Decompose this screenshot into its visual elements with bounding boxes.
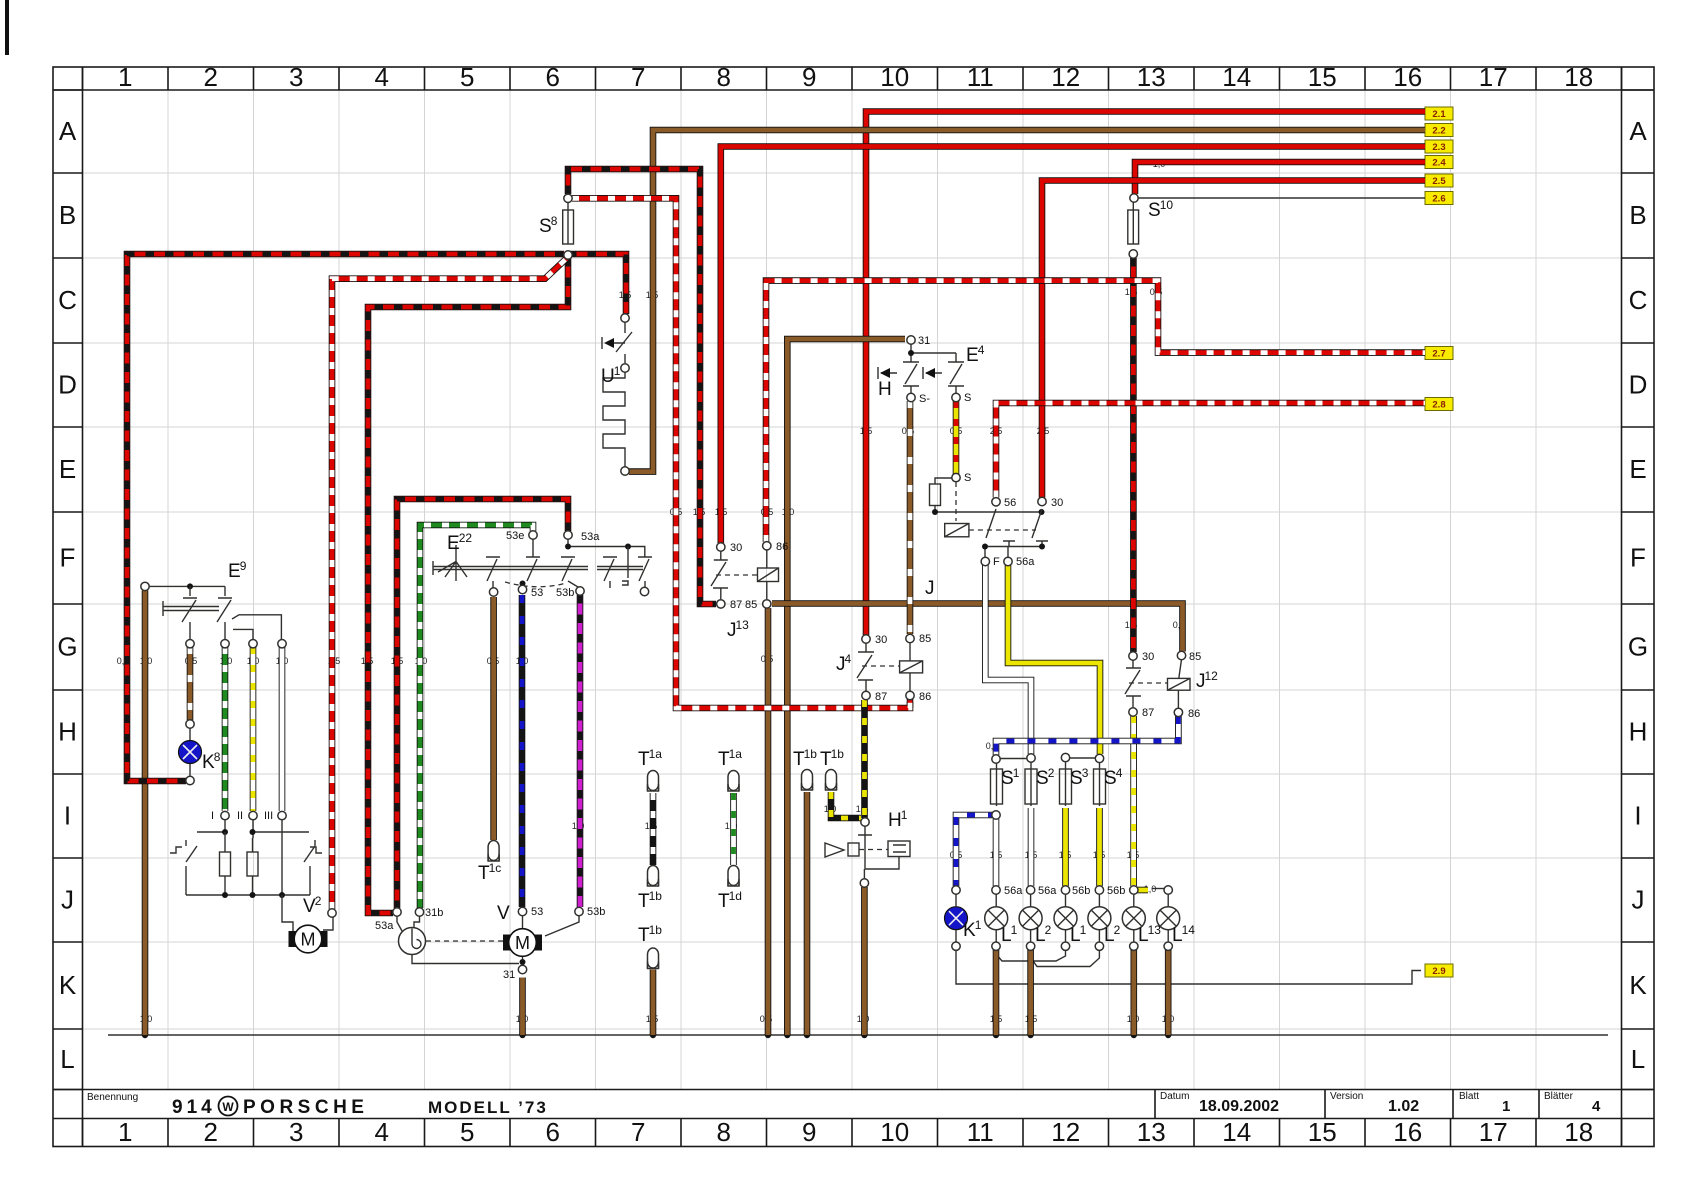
svg-text:4: 4 xyxy=(1592,1098,1601,1115)
svg-text:II: II xyxy=(237,810,243,822)
svg-text:2.6: 2.6 xyxy=(1432,194,1445,205)
svg-text:J: J xyxy=(925,578,935,599)
svg-text:Benennung: Benennung xyxy=(87,1092,138,1103)
svg-text:8: 8 xyxy=(717,62,731,92)
svg-text:W: W xyxy=(222,1100,234,1114)
svg-text:1: 1 xyxy=(118,1117,132,1147)
svg-text:7: 7 xyxy=(631,62,645,92)
svg-text:11: 11 xyxy=(967,1117,994,1147)
svg-text:30: 30 xyxy=(730,542,742,554)
svg-text:85: 85 xyxy=(919,633,931,645)
svg-text:D: D xyxy=(58,370,77,400)
svg-text:53b: 53b xyxy=(587,906,605,918)
svg-text:11: 11 xyxy=(967,62,994,92)
svg-text:12: 12 xyxy=(1051,1117,1080,1147)
svg-text:56b: 56b xyxy=(1072,885,1090,897)
svg-text:87: 87 xyxy=(1142,707,1154,719)
svg-text:S: S xyxy=(964,392,971,404)
svg-text:14: 14 xyxy=(1222,62,1251,92)
svg-text:2.1: 2.1 xyxy=(1432,109,1446,120)
svg-text:8: 8 xyxy=(717,1117,731,1147)
svg-text:2.5: 2.5 xyxy=(1432,176,1446,187)
svg-text:86: 86 xyxy=(776,541,788,553)
svg-text:914: 914 xyxy=(172,1097,216,1118)
svg-text:L: L xyxy=(1631,1044,1645,1074)
svg-text:2.4: 2.4 xyxy=(1432,158,1446,169)
svg-text:53a: 53a xyxy=(375,920,394,932)
svg-text:4: 4 xyxy=(375,1117,389,1147)
svg-text:13: 13 xyxy=(1137,62,1166,92)
svg-text:16: 16 xyxy=(1393,1117,1422,1147)
svg-text:F: F xyxy=(1630,543,1646,573)
svg-text:31b: 31b xyxy=(425,907,443,919)
svg-text:17: 17 xyxy=(1479,1117,1508,1147)
svg-text:I: I xyxy=(64,801,71,831)
svg-text:31: 31 xyxy=(503,969,515,981)
svg-text:S: S xyxy=(964,472,971,484)
svg-text:12: 12 xyxy=(1051,62,1080,92)
svg-text:E: E xyxy=(59,454,76,484)
svg-text:7: 7 xyxy=(631,1117,645,1147)
svg-text:A: A xyxy=(1629,116,1647,146)
svg-text:H: H xyxy=(878,379,892,400)
svg-text:J: J xyxy=(61,885,74,915)
svg-text:6: 6 xyxy=(546,62,560,92)
svg-text:17: 17 xyxy=(1479,62,1508,92)
svg-text:14: 14 xyxy=(1222,1117,1251,1147)
svg-text:10: 10 xyxy=(880,62,909,92)
svg-text:87: 87 xyxy=(730,599,742,611)
svg-text:13: 13 xyxy=(1137,1117,1166,1147)
svg-text:30: 30 xyxy=(1051,497,1063,509)
svg-text:2.9: 2.9 xyxy=(1432,966,1445,977)
svg-text:E: E xyxy=(1629,454,1646,484)
svg-text:56a: 56a xyxy=(1016,556,1035,568)
svg-text:30: 30 xyxy=(1142,651,1154,663)
svg-text:L: L xyxy=(60,1044,74,1074)
svg-text:2.8: 2.8 xyxy=(1432,400,1445,411)
svg-text:30: 30 xyxy=(875,634,887,646)
svg-text:9: 9 xyxy=(802,62,816,92)
svg-text:85: 85 xyxy=(1189,651,1201,663)
svg-text:Blätter: Blätter xyxy=(1544,1091,1574,1102)
svg-text:1: 1 xyxy=(118,62,132,92)
svg-text:18.09.2002: 18.09.2002 xyxy=(1199,1098,1279,1115)
svg-text:B: B xyxy=(59,200,76,230)
svg-text:5: 5 xyxy=(460,62,474,92)
svg-text:1.02: 1.02 xyxy=(1388,1098,1419,1115)
svg-text:Version: Version xyxy=(1330,1091,1363,1102)
svg-text:15: 15 xyxy=(1308,62,1337,92)
svg-text:C: C xyxy=(1629,285,1648,315)
svg-text:B: B xyxy=(1629,200,1646,230)
svg-text:5: 5 xyxy=(460,1117,474,1147)
svg-text:3: 3 xyxy=(289,62,303,92)
svg-text:A: A xyxy=(59,116,77,146)
svg-text:C: C xyxy=(58,285,77,315)
svg-text:53a: 53a xyxy=(581,531,600,543)
svg-text:2.3: 2.3 xyxy=(1432,142,1445,153)
svg-text:56a: 56a xyxy=(1038,885,1057,897)
svg-text:3: 3 xyxy=(289,1117,303,1147)
svg-text:I: I xyxy=(1634,801,1641,831)
svg-text:S-: S- xyxy=(919,393,930,405)
svg-text:6: 6 xyxy=(546,1117,560,1147)
svg-text:K: K xyxy=(59,970,77,1000)
svg-text:G: G xyxy=(57,632,77,662)
svg-text:53: 53 xyxy=(531,906,543,918)
svg-text:85: 85 xyxy=(745,599,757,611)
svg-text:2.7: 2.7 xyxy=(1432,349,1445,360)
svg-text:J: J xyxy=(1632,885,1645,915)
svg-text:31: 31 xyxy=(918,335,930,347)
svg-text:18: 18 xyxy=(1564,1117,1593,1147)
svg-text:III: III xyxy=(264,810,273,822)
svg-text:F: F xyxy=(993,556,1000,568)
svg-text:I: I xyxy=(211,810,214,822)
svg-text:2: 2 xyxy=(204,62,218,92)
svg-text:56b: 56b xyxy=(1107,885,1125,897)
svg-text:Blatt: Blatt xyxy=(1459,1091,1479,1102)
svg-text:M: M xyxy=(301,930,316,950)
svg-text:2.2: 2.2 xyxy=(1432,126,1445,137)
svg-text:9: 9 xyxy=(802,1117,816,1147)
svg-text:10: 10 xyxy=(880,1117,909,1147)
svg-text:Datum: Datum xyxy=(1160,1091,1189,1102)
svg-text:86: 86 xyxy=(919,691,931,703)
svg-text:53: 53 xyxy=(531,587,543,599)
svg-text:MODELL ’73: MODELL ’73 xyxy=(428,1098,548,1117)
svg-text:53b: 53b xyxy=(556,587,574,599)
svg-text:56a: 56a xyxy=(1004,885,1023,897)
svg-text:F: F xyxy=(60,543,76,573)
svg-text:18: 18 xyxy=(1564,62,1593,92)
svg-text:H: H xyxy=(1629,717,1648,747)
svg-text:16: 16 xyxy=(1393,62,1422,92)
svg-text:V: V xyxy=(497,903,510,924)
svg-text:K: K xyxy=(1629,970,1647,1000)
svg-text:2: 2 xyxy=(204,1117,218,1147)
svg-text:15: 15 xyxy=(1308,1117,1337,1147)
svg-text:PORSCHE: PORSCHE xyxy=(243,1097,368,1118)
svg-text:H: H xyxy=(58,717,77,747)
svg-text:4: 4 xyxy=(375,62,389,92)
svg-text:D: D xyxy=(1629,370,1648,400)
svg-text:G: G xyxy=(1628,632,1648,662)
svg-text:87: 87 xyxy=(875,691,887,703)
svg-text:1: 1 xyxy=(1502,1098,1510,1115)
svg-text:86: 86 xyxy=(1188,708,1200,720)
svg-text:53e: 53e xyxy=(506,530,524,542)
svg-text:M: M xyxy=(515,933,530,953)
svg-text:56: 56 xyxy=(1004,497,1016,509)
